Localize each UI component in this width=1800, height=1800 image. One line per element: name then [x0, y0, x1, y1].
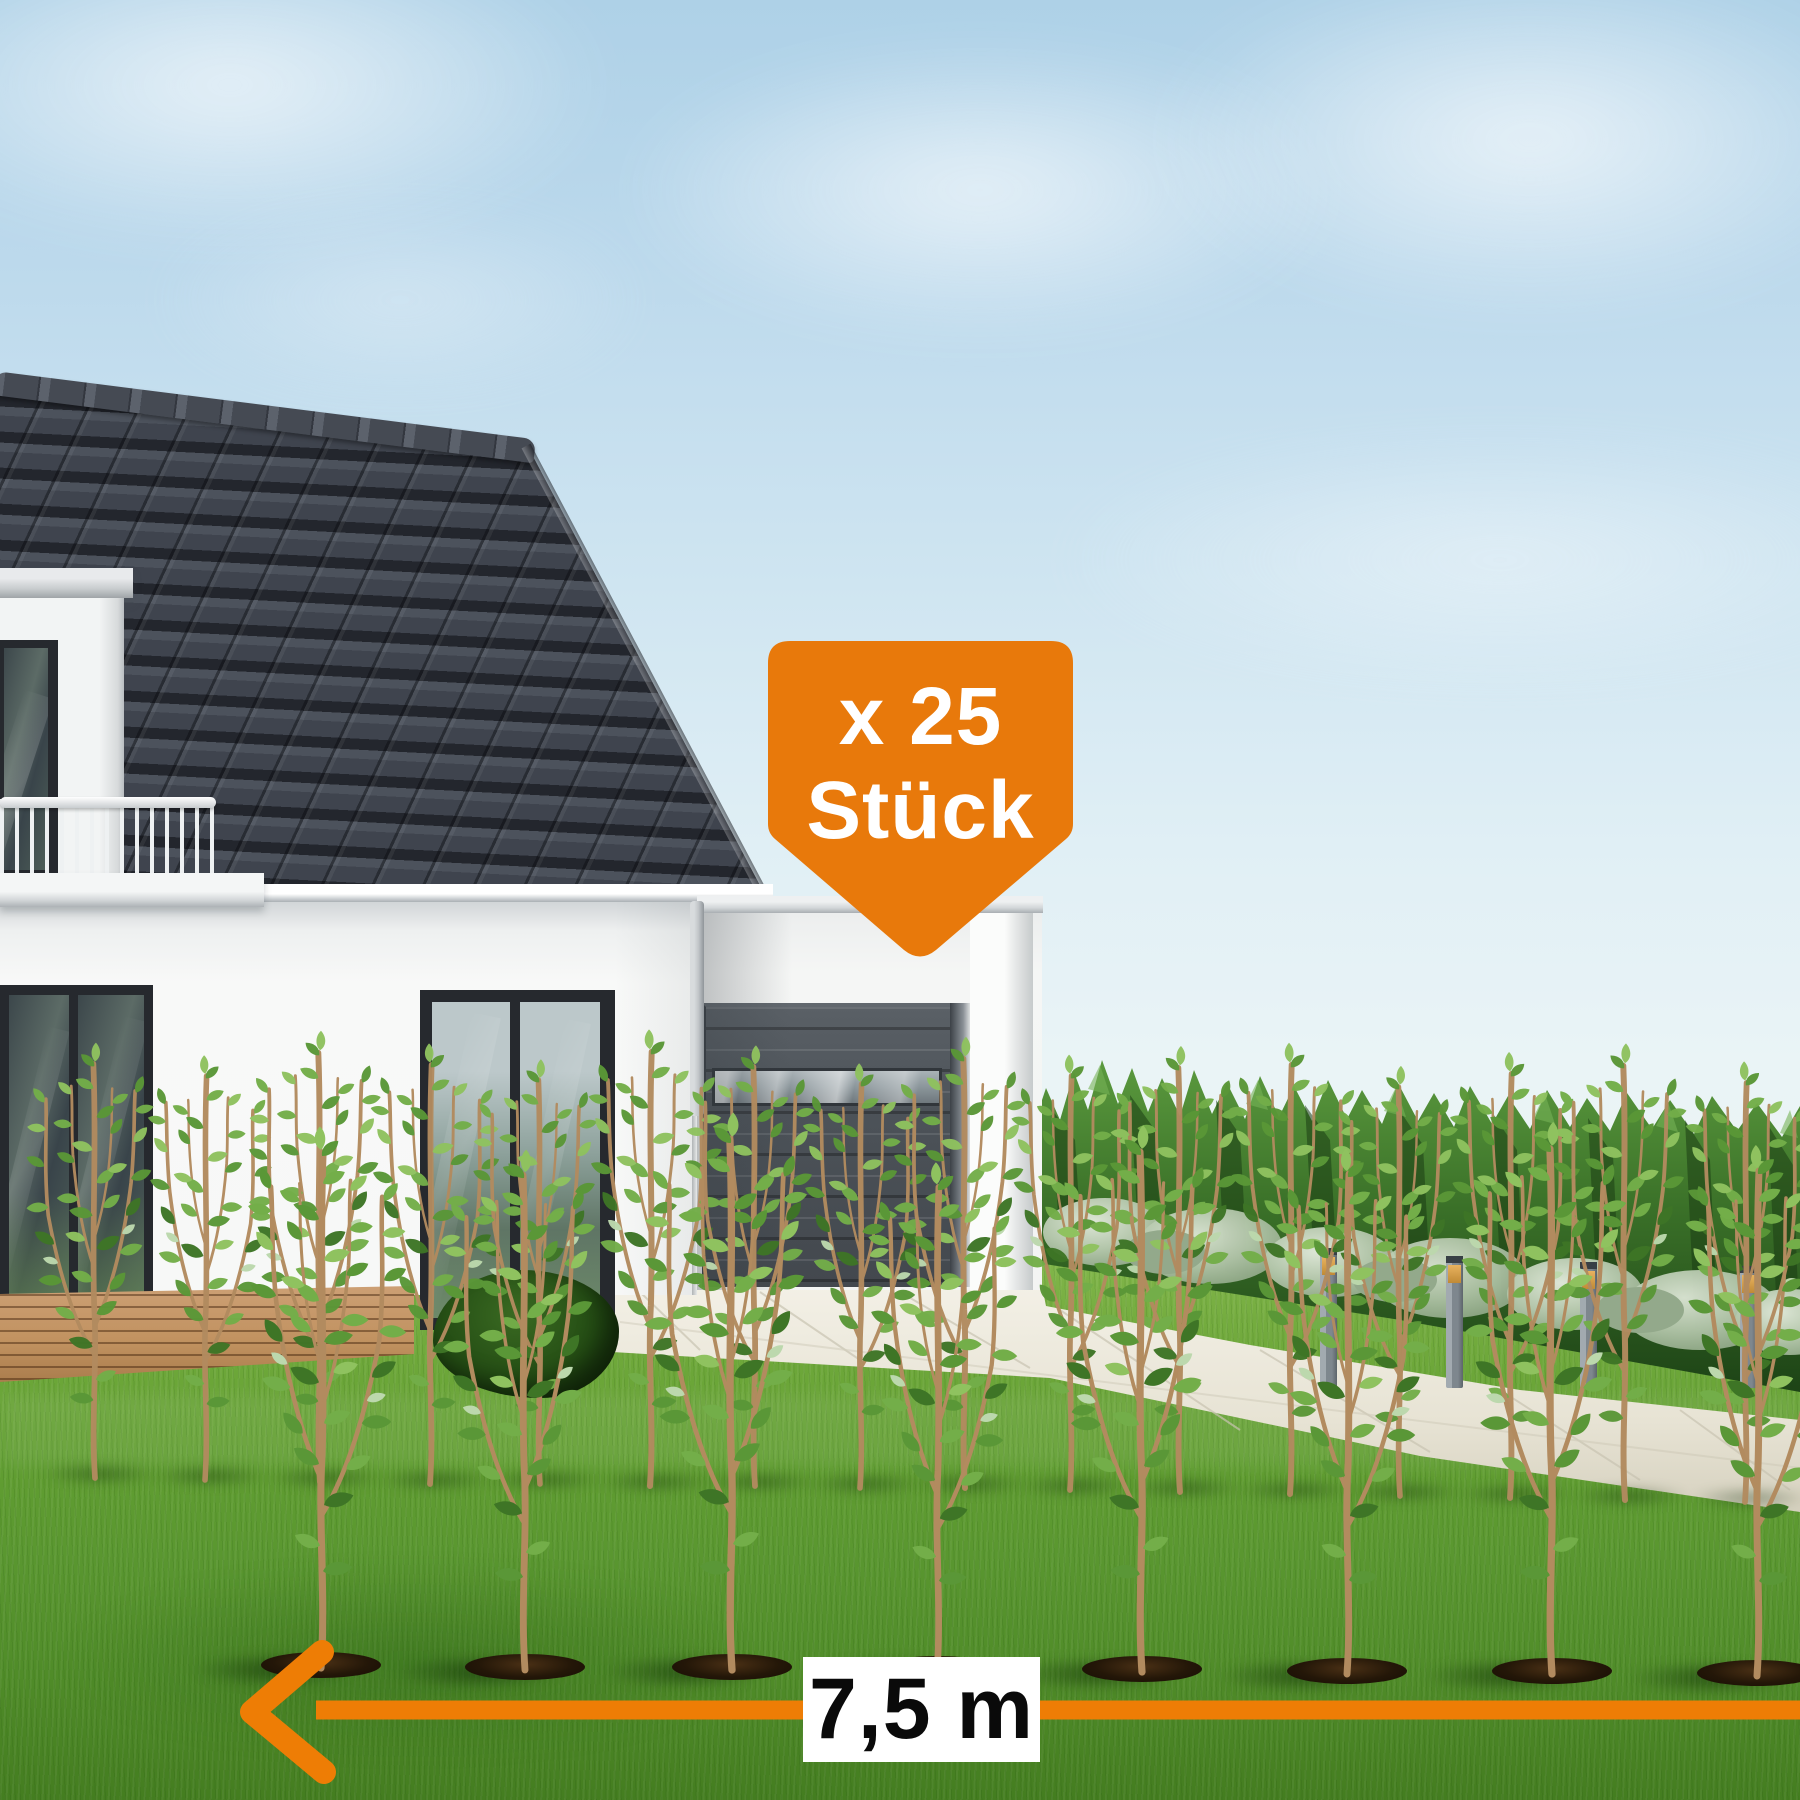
plant-shadow [150, 1464, 270, 1488]
plant-shadow [265, 1466, 385, 1490]
window-glass [432, 1002, 510, 1318]
terrace-sliding-door [0, 985, 153, 1330]
plant-shadow [40, 1462, 160, 1486]
plant-shadow [485, 1468, 605, 1492]
door-glass [9, 995, 69, 1305]
plant-shadow [1690, 1486, 1800, 1510]
bollard-light [1446, 1256, 1463, 1388]
soil-patch [465, 1654, 585, 1680]
wall-shading [615, 893, 697, 1295]
bollard-light [1740, 1266, 1757, 1388]
soil-patch [672, 1654, 792, 1680]
soil-patch [1287, 1658, 1407, 1684]
plant-shadow [1125, 1476, 1245, 1500]
balcony-handrail [0, 797, 216, 808]
bollard-light [1320, 1248, 1337, 1388]
plant-shadow [1455, 1482, 1575, 1506]
downpipe [690, 901, 704, 1116]
balcony-slab [0, 873, 264, 907]
plant-shadow [1015, 1474, 1135, 1498]
badge-unit-text: Stück [768, 770, 1073, 852]
garage-corner [970, 913, 1033, 1290]
plant-shadow [910, 1472, 1030, 1496]
balcony-railing [0, 799, 214, 877]
garage-door-frame [950, 1003, 972, 1287]
plant-shadow [1570, 1484, 1690, 1508]
measurement-label: 7,5 m [803, 1657, 1040, 1762]
lawn-light-band [0, 1395, 1800, 1465]
door-glass [78, 995, 144, 1305]
bollard-light [1580, 1262, 1597, 1388]
plant-shadow [375, 1468, 495, 1492]
soil-patch [1082, 1656, 1202, 1682]
cloud [150, 200, 650, 400]
soil-patch [261, 1652, 381, 1678]
plant-shadow [1345, 1480, 1465, 1504]
plant-shadow [595, 1470, 715, 1494]
badge-quantity-text: x 25 [768, 676, 1073, 758]
dormer-coping [0, 568, 133, 598]
plant-shadow [805, 1472, 925, 1496]
product-illustration-hedge-scene: 7,5 m x 25 Stück [0, 0, 1800, 1800]
plant-shadow [1235, 1478, 1355, 1502]
soil-patch [1492, 1658, 1612, 1684]
garage-parapet [697, 896, 1043, 913]
plant-shadow [700, 1470, 820, 1494]
garage-shadow [697, 913, 792, 1290]
foundation-shrub [433, 1270, 619, 1398]
eaves-gutter [213, 884, 773, 902]
